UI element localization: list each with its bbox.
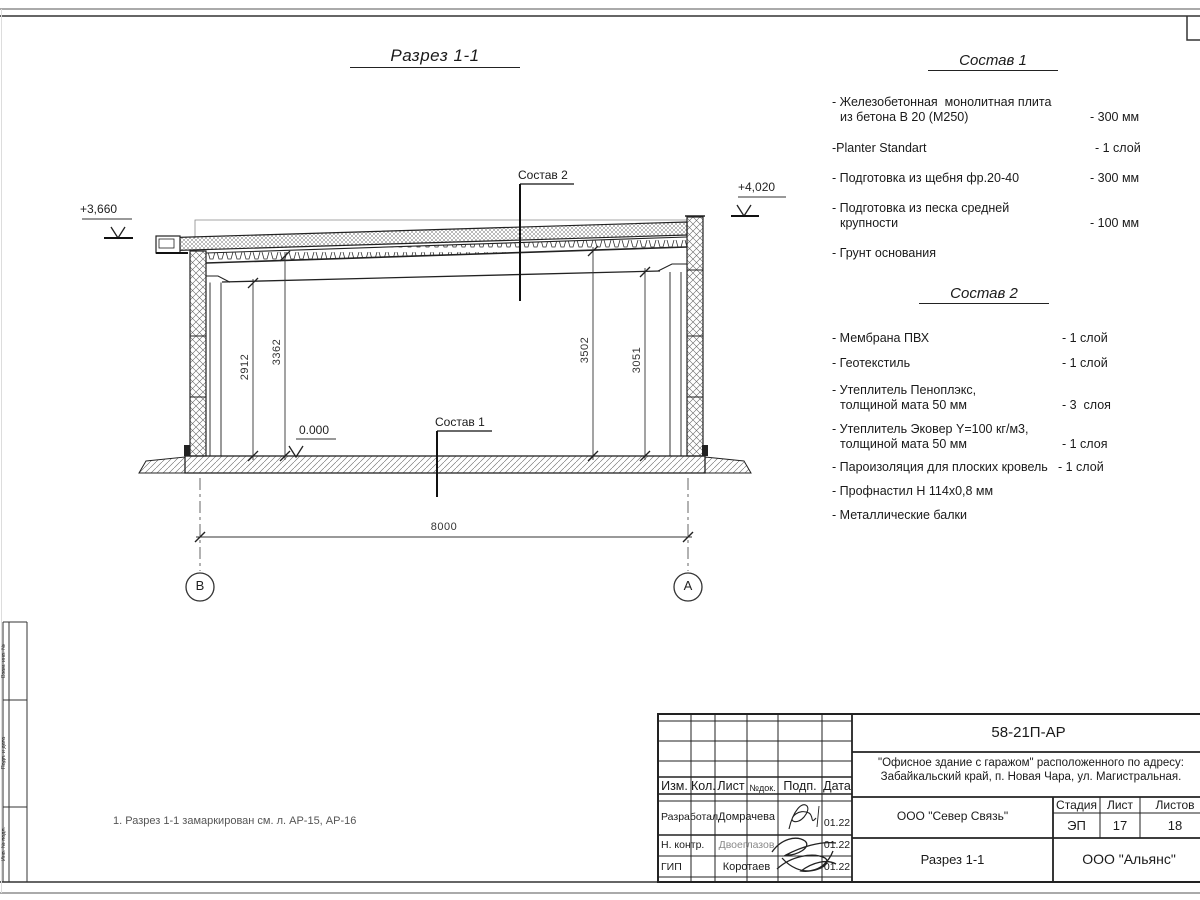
stage-label: Стадия — [1053, 799, 1100, 813]
drawing-sheet: Разрез 1-1 Состав 1 - Железобетонная мон… — [0, 0, 1200, 900]
sostav1-item-value: - 1 слой — [1095, 141, 1141, 155]
dim-8000: 8000 — [414, 521, 474, 534]
sostav2-item-value: - 1 слой — [1062, 356, 1108, 370]
name-dvoeglazov: Двоеглазов — [715, 839, 778, 851]
col-ndok: №док. — [747, 783, 778, 793]
sostav1-title: Состав 1 — [928, 52, 1058, 71]
sheet-label: Лист — [1100, 799, 1140, 813]
sostav1-item-value: - 300 мм — [1090, 171, 1139, 185]
left-base-detail — [184, 445, 190, 456]
col-podp: Подп. — [778, 779, 822, 793]
sostav2-item: - Пароизоляция для плоских кровель — [832, 460, 1048, 474]
dim-3502: 3502 — [579, 328, 593, 372]
axis-label-left: В — [193, 579, 207, 594]
role-nkontr: Н. контр. — [661, 839, 704, 851]
drawing-name: Разрез 1-1 — [852, 853, 1053, 868]
sheets-total: 18 — [1140, 819, 1200, 834]
floor-slab — [185, 456, 705, 473]
col-kol: Кол. — [691, 779, 715, 793]
sostav2-item: - Профнастил Н 114х0,8 мм — [832, 484, 993, 498]
side-stamp-label: Подп. и дата — [1, 713, 11, 793]
sheet-number: 17 — [1100, 819, 1140, 834]
side-stamp-label: Инв. № подл. — [1, 804, 11, 884]
sostav2-title: Состав 2 — [919, 285, 1049, 304]
beam-bottom — [222, 271, 660, 282]
level-mark-right — [737, 205, 751, 216]
sostav2-item-value: - 3 слоя — [1062, 398, 1111, 412]
organization: ООО "Север Связь" — [852, 810, 1053, 824]
sostav1-item: - Грунт основания — [832, 246, 936, 260]
dim-3362: 3362 — [271, 330, 285, 374]
sostav2-item: - Утеплитель Эковер Y=100 кг/м3, — [832, 422, 1028, 436]
dimensions — [195, 246, 693, 542]
project-address-line1: "Офисное здание с гаражом" расположенног… — [856, 757, 1200, 770]
name-korotaev: Коротаев — [715, 861, 778, 874]
left-wall — [190, 251, 206, 456]
elevation-left: +3,660 — [80, 203, 117, 217]
sostav2-item-line2: толщиной мата 50 мм — [840, 398, 967, 412]
sheet-note: 1. Разрез 1-1 замаркирован см. л. АР-15,… — [113, 815, 356, 828]
sostav2-item: - Мембрана ПВХ — [832, 331, 929, 345]
grid-axes — [186, 478, 702, 601]
sostav1-item-line2: крупности — [840, 216, 898, 230]
sostav2-item-line2: толщиной мата 50 мм — [840, 437, 967, 451]
axis-label-right: А — [681, 579, 695, 594]
sostav2-item-value: - 1 слой — [1058, 460, 1104, 474]
sostav2-item: - Утеплитель Пеноплэкс, — [832, 383, 976, 397]
sostav1-item: - Железобетонная монолитная плита — [832, 95, 1051, 109]
elevation-right: +4,020 — [738, 181, 775, 195]
date-nkontr: 01.22 — [822, 839, 852, 851]
col-data: Дата — [822, 779, 852, 793]
sostav2-item: - Геотекстиль — [832, 356, 910, 370]
stage-value: ЭП — [1053, 819, 1100, 834]
doc-number: 58-21П-АР — [852, 724, 1200, 741]
col-list: Лист — [715, 779, 747, 793]
side-stamp-label: Взам. инв. № — [1, 621, 11, 701]
date-razrabotal: 01.22 — [822, 817, 852, 829]
sostav1-item-value: - 300 мм — [1090, 110, 1139, 124]
view-title: Разрез 1-1 — [350, 46, 520, 68]
sostav1-item-value: - 100 мм — [1090, 216, 1139, 230]
sostav1-item: - Подготовка из щебня фр.20-40 — [832, 171, 1019, 185]
sostav1-callout: Состав 1 — [435, 416, 485, 430]
dim-2912: 2912 — [239, 345, 253, 389]
col-izm: Изм. — [658, 779, 691, 793]
sostav2-item-value: - 1 слоя — [1062, 437, 1107, 451]
building-section — [139, 216, 751, 473]
corner-stamp-box — [1187, 16, 1200, 40]
role-razrabotal: Разработал — [661, 811, 718, 823]
signature-domracheva — [789, 805, 816, 829]
dim-3051: 3051 — [631, 338, 645, 382]
sostav1-item: - Подготовка из песка средней — [832, 201, 1009, 215]
sheets-label: Листов — [1140, 799, 1200, 813]
elevation-zero: 0.000 — [299, 424, 329, 438]
sostav1-item: -Planter Standart — [832, 141, 927, 155]
name-domracheva: Домрачева — [715, 811, 778, 824]
role-gip: ГИП — [661, 861, 682, 873]
sostav1-item-line2: из бетона В 20 (М250) — [840, 110, 968, 124]
date-gip: 01.22 — [822, 861, 852, 873]
project-address-line2: Забайкальский край, п. Новая Чара, ул. М… — [856, 771, 1200, 784]
contractor: ООО "Альянс" — [1053, 851, 1200, 867]
sostav2-item: - Металлические балки — [832, 508, 967, 522]
right-base-detail — [702, 445, 708, 456]
sostav2-item-value: - 1 слой — [1062, 331, 1108, 345]
sostav2-callout: Состав 2 — [518, 169, 568, 183]
level-mark-left — [111, 227, 125, 238]
